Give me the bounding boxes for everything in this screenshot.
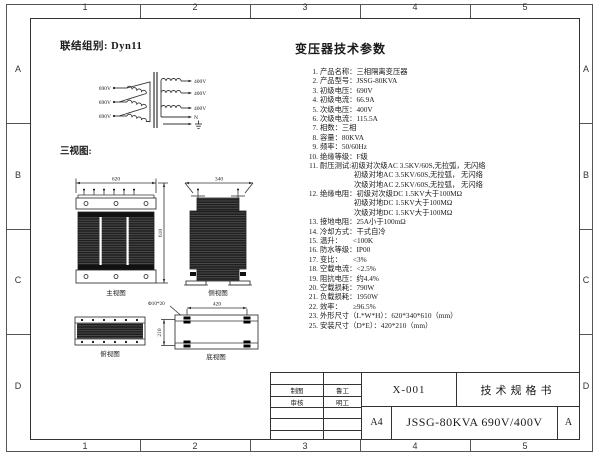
zone-row-label: B — [6, 170, 30, 180]
param-line: 18.空载电流：<2.5% — [303, 264, 575, 273]
top-view: 俯视图 — [75, 317, 145, 358]
terminal-dot — [113, 87, 115, 89]
param-text: 温升： <100K — [320, 236, 373, 245]
secondary-voltage-label: 400V — [194, 79, 206, 85]
param-num: 5. — [303, 105, 318, 114]
param-num — [303, 170, 318, 179]
param-text: 防水等级：IP00 — [320, 245, 370, 254]
param-num: 7. — [303, 123, 318, 132]
terminal-dot — [113, 101, 115, 103]
secondary-voltage-label: 400V — [194, 106, 206, 112]
zone-tick — [140, 4, 141, 18]
slot-dim: Φ10*20 — [148, 301, 165, 307]
zone-col-label: 4 — [405, 2, 425, 12]
param-num: 3. — [303, 86, 318, 95]
param-line: 次级对地AC 2.5KV/60S,无拉弧， 无闪络 — [303, 180, 575, 189]
param-num: 12. — [303, 189, 318, 198]
terminal-dot — [113, 115, 115, 117]
zone-tick — [580, 334, 593, 335]
primary-voltage-label: 690V — [99, 86, 111, 92]
paper-size: A4 — [362, 406, 391, 439]
zone-tick — [6, 334, 30, 335]
primary-coil — [127, 100, 147, 108]
secondary-coil — [161, 79, 181, 82]
param-text: 接地电阻：25A小于100mΩ — [320, 217, 406, 226]
param-text: 频率：50/60Hz — [320, 142, 367, 151]
params-list: 1.产品名称：三相隔离变压器 2.产品型号：JSSG-80KVA 3.初级电压：… — [303, 67, 575, 330]
front-width-dim: 620 — [112, 177, 121, 183]
param-text: 绝缘等级：F级 — [320, 152, 368, 161]
secondary-coil — [161, 106, 181, 109]
param-text: 次级电压：400V — [320, 105, 373, 114]
param-line: 10.绝缘等级：F级 — [303, 152, 575, 161]
param-num: 19. — [303, 274, 318, 283]
zone-col-label: 5 — [515, 441, 535, 451]
param-num: 25. — [303, 321, 318, 330]
three-views-drawing: 620 610 主视图 340 侧视图 — [58, 168, 290, 366]
param-text: 产品型号：JSSG-80KVA — [320, 76, 397, 85]
param-num: 11. — [303, 161, 318, 170]
zone-tick — [470, 4, 471, 18]
terminal-arrow — [189, 123, 193, 126]
primary-voltage-label: 690V — [99, 100, 111, 106]
param-text: 阻抗电压：约4.4% — [320, 274, 379, 283]
param-text: 负载损耗：1950W — [320, 292, 378, 301]
checker-label: 审核 — [271, 396, 323, 407]
bottom-height-dim: 210 — [157, 328, 163, 337]
param-text: 空载电流：<2.5% — [320, 264, 376, 273]
drawing-number: X-001 — [362, 373, 456, 406]
views-section-label: 三视图: — [60, 143, 92, 157]
zone-tick — [140, 440, 141, 452]
param-num: 22. — [303, 302, 318, 311]
param-line: 次级对地DC 1.5KV大于100MΩ — [303, 208, 575, 217]
param-text: 绝缘电阻：初级对次级DC 1.5KV大于100MΩ — [320, 189, 462, 198]
zone-row-label: C — [577, 275, 595, 285]
drafter-name: 鲁工 — [324, 384, 361, 396]
param-line: 5.次级电压：400V — [303, 105, 575, 114]
param-num: 1. — [303, 67, 318, 76]
primary-coil — [127, 114, 147, 122]
param-text: 空载损耗：790W — [320, 283, 374, 292]
param-line: 8.容量：80KVA — [303, 133, 575, 142]
zone-tick — [470, 440, 471, 452]
param-num: 21. — [303, 292, 318, 301]
zone-row-label: C — [6, 275, 30, 285]
param-num: 8. — [303, 133, 318, 142]
param-line: 6.次级电流：115.5A — [303, 114, 575, 123]
param-line: 3.初级电压：690V — [303, 86, 575, 95]
param-text: 效率： ≥96.5% — [320, 302, 376, 311]
document-title: 技术规格书 — [457, 373, 579, 406]
param-line: 20.空载损耗：790W — [303, 283, 575, 292]
param-text: 安装尺寸（D*E）：420*210（mm） — [320, 321, 432, 330]
param-line: 7.相数：三相 — [303, 123, 575, 132]
param-num: 2. — [303, 76, 318, 85]
zone-col-label: 4 — [405, 441, 425, 451]
drafter-label: 制图 — [271, 384, 323, 396]
param-text: 初级电流：66.9A — [320, 95, 375, 104]
terminal-arrow — [189, 80, 193, 83]
param-line: 25.安装尺寸（D*E）：420*210（mm） — [303, 321, 575, 330]
param-text: 次级电流：115.5A — [320, 114, 378, 123]
primary-voltage-label: 690V — [99, 114, 111, 120]
param-line: 1.产品名称：三相隔离变压器 — [303, 67, 575, 76]
param-text: 容量：80KVA — [320, 133, 364, 142]
terminal-arrow — [189, 107, 193, 110]
param-num: 6. — [303, 114, 318, 123]
param-num — [303, 180, 318, 189]
zone-col-label: 5 — [515, 2, 535, 12]
param-text: 初级对地AC 3.5KV/60S,无拉弧， 无闪络 — [320, 170, 483, 179]
bottom-view-label: 底视图 — [206, 352, 226, 361]
param-num: 10. — [303, 152, 318, 161]
bottom-view: Φ10*20 420 210 底视图 — [148, 301, 258, 361]
front-height-dim: 610 — [158, 229, 164, 238]
zone-col-label: 2 — [185, 2, 205, 12]
param-line: 14.冷却方式：干式自冷 — [303, 227, 575, 236]
param-num: 20. — [303, 283, 318, 292]
zone-tick — [250, 440, 251, 452]
param-num — [303, 208, 318, 217]
param-line: 初级对地AC 3.5KV/60S,无拉弧， 无闪络 — [303, 170, 575, 179]
top-view-label: 俯视图 — [100, 349, 120, 358]
param-text: 冷却方式：干式自冷 — [320, 227, 386, 236]
side-view-label: 侧视图 — [208, 288, 228, 297]
param-num: 14. — [303, 227, 318, 236]
param-text: 初级对地DC 1.5KV大于100MΩ — [320, 198, 452, 207]
param-num: 9. — [303, 142, 318, 151]
param-text: 次级对地AC 2.5KV/60S,无拉弧， 无闪络 — [320, 180, 483, 189]
param-line: 15.温升： <100K — [303, 236, 575, 245]
zone-tick — [6, 123, 30, 124]
secondary-coil — [161, 91, 181, 94]
param-num: 17. — [303, 255, 318, 264]
product-designation: JSSG-80KVA 690V/400V — [392, 406, 557, 439]
param-num: 16. — [303, 245, 318, 254]
zone-tick — [580, 123, 593, 124]
param-line: 19.阻抗电压：约4.4% — [303, 274, 575, 283]
param-line: 2.产品型号：JSSG-80KVA — [303, 76, 575, 85]
param-num: 13. — [303, 217, 318, 226]
terminal-arrow — [189, 92, 193, 95]
front-view: 620 610 主视图 — [76, 177, 168, 298]
param-line: 12.绝缘电阻：初级对次级DC 1.5KV大于100MΩ — [303, 189, 575, 198]
zone-row-label: D — [6, 381, 30, 391]
front-view-label: 主视图 — [106, 288, 126, 297]
revision: A — [558, 406, 579, 439]
param-text: 外形尺寸（L*W*H）：620*340*610（mm） — [320, 311, 457, 320]
zone-tick — [360, 440, 361, 452]
side-view: 340 侧视图 — [184, 177, 253, 298]
param-line: 23.外形尺寸（L*W*H）：620*340*610（mm） — [303, 311, 575, 320]
param-num: 18. — [303, 264, 318, 273]
param-text: 产品名称：三相隔离变压器 — [320, 67, 408, 76]
zone-tick — [580, 229, 593, 230]
bottom-width-dim: 420 — [213, 302, 222, 308]
side-width-dim: 340 — [215, 177, 224, 183]
terminal-arrow — [189, 116, 193, 119]
param-line: 13.接地电阻：25A小于100mΩ — [303, 217, 575, 226]
param-num: 15. — [303, 236, 318, 245]
param-line: 初级对地DC 1.5KV大于100MΩ — [303, 198, 575, 207]
param-line: 21.负载损耗：1950W — [303, 292, 575, 301]
winding-diagram: 690V 690V 690V 400V 400V 400V N — [95, 58, 213, 134]
neutral-label: N — [194, 115, 198, 121]
param-line: 16.防水等级：IP00 — [303, 245, 575, 254]
ground-symbol-icon — [195, 121, 202, 129]
param-line: 17.变比： <3% — [303, 255, 575, 264]
param-text: 初级电压：690V — [320, 86, 373, 95]
param-text: 相数：三相 — [320, 123, 356, 132]
zone-col-label: 1 — [75, 441, 95, 451]
param-text: 次级对地DC 1.5KV大于100MΩ — [320, 208, 452, 217]
zone-col-label: 1 — [75, 2, 95, 12]
connection-group-label: 联结组别: Dyn11 — [60, 38, 142, 53]
zone-col-label: 3 — [295, 2, 315, 12]
param-num: 4. — [303, 95, 318, 104]
param-num: 23. — [303, 311, 318, 320]
secondary-voltage-label: 400V — [194, 91, 206, 97]
param-text: 变比： <3% — [320, 255, 367, 264]
param-text: 耐压测试:初级对次级AC 3.5KV/60S,无拉弧，无闪络 — [320, 161, 486, 170]
param-line: 22.效率： ≥96.5% — [303, 302, 575, 311]
zone-row-label: A — [577, 64, 595, 74]
title-block: 制图 鲁工 审核 明工 X-001 技术规格书 A4 JSSG-80KVA 69… — [270, 372, 580, 440]
zone-col-label: 3 — [295, 441, 315, 451]
zone-row-label: B — [577, 170, 595, 180]
drawing-sheet: 1 2 3 4 5 1 2 3 4 5 A B C D A B C D 联结组别… — [0, 0, 600, 457]
zone-tick — [360, 4, 361, 18]
zone-row-label: A — [6, 64, 30, 74]
zone-tick — [250, 4, 251, 18]
param-num — [303, 198, 318, 207]
checker-name: 明工 — [324, 396, 361, 407]
param-line: 11.耐压测试:初级对次级AC 3.5KV/60S,无拉弧，无闪络 — [303, 161, 575, 170]
param-line: 9.频率：50/60Hz — [303, 142, 575, 151]
zone-col-label: 2 — [185, 441, 205, 451]
param-line: 4.初级电流：66.9A — [303, 95, 575, 104]
zone-tick — [6, 229, 30, 230]
params-title: 变压器技术参数 — [295, 40, 386, 57]
